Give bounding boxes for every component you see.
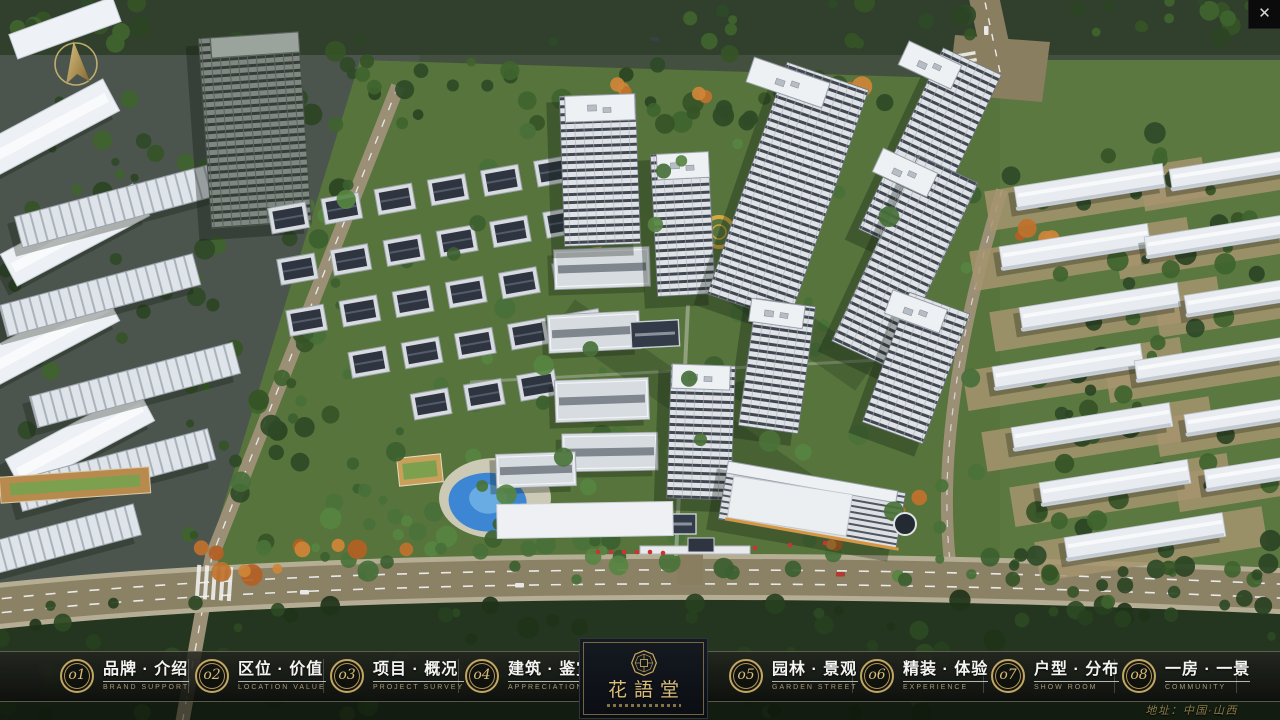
nav-number-badge: o1: [60, 659, 94, 693]
nav-label-en: GARDEN STREET: [772, 684, 858, 692]
brand-seal-icon: [629, 648, 659, 678]
nav-number-badge: o3: [330, 659, 364, 693]
nav-underline: [373, 681, 464, 682]
nav-underline: [1034, 681, 1119, 682]
nav-label-zh: 一房 · 一景: [1165, 661, 1250, 679]
nav-item-architecture[interactable]: o4 建筑 · 鉴赏 APPRECIATION: [465, 659, 593, 693]
nav-label-zh: 园林 · 景观: [772, 661, 857, 679]
nav-label-en: BRAND SUPPORT: [103, 684, 189, 692]
nav-item-views[interactable]: o8 一房 · 一景 COMMUNITY: [1122, 659, 1250, 693]
nav-label-zh: 品牌 · 介绍: [103, 661, 188, 679]
nav-underline: [103, 681, 189, 682]
project-name: 花語堂: [601, 680, 686, 700]
nav-underline: [903, 681, 988, 682]
nav-number-badge: o7: [991, 659, 1025, 693]
nav-label-zh: 户型 · 分布: [1034, 661, 1119, 679]
nav-item-garden[interactable]: o5 园林 · 景观 GARDEN STREET: [729, 659, 858, 693]
nav-label-en: APPRECIATION: [508, 684, 584, 692]
nav-number-badge: o2: [195, 659, 229, 693]
nav-label-en: SHOW ROOM: [1034, 684, 1098, 692]
nav-label-en: LOCATION VALUE: [238, 684, 326, 692]
map-viewport[interactable]: [0, 0, 1280, 720]
nav-label-en: COMMUNITY: [1165, 684, 1226, 692]
logo-frame: 花語堂: [583, 642, 704, 715]
nav-item-project[interactable]: o3 项目 · 概况 PROJECT SURVEY: [330, 659, 464, 693]
logo-tagline: [607, 704, 681, 707]
nav-label-en: PROJECT SURVEY: [373, 684, 464, 692]
nav-number-badge: o4: [465, 659, 499, 693]
nav-item-brand[interactable]: o1 品牌 · 介绍 BRAND SUPPORT: [60, 659, 189, 693]
compass-icon: [46, 34, 106, 94]
nav-label-zh: 精装 · 体验: [903, 661, 988, 679]
nav-label-zh: 区位 · 价值: [238, 661, 323, 679]
aerial-render: [0, 0, 1280, 720]
nav-underline: [238, 681, 326, 682]
nav-item-floorplans[interactable]: o7 户型 · 分布 SHOW ROOM: [991, 659, 1119, 693]
nav-underline: [772, 681, 858, 682]
sales-presentation-screen: ✕ 地址：中国·山西 o1 品牌 · 介绍 BRAND SUPPORT o2 区…: [0, 0, 1280, 720]
nav-number-badge: o5: [729, 659, 763, 693]
close-button[interactable]: ✕: [1248, 0, 1280, 29]
nav-underline: [1165, 681, 1250, 682]
nav-item-interior[interactable]: o6 精装 · 体验 EXPERIENCE: [860, 659, 988, 693]
project-address: 地址：中国·山西: [1145, 702, 1238, 718]
nav-number-badge: o8: [1122, 659, 1156, 693]
brand-logo-panel[interactable]: 花語堂: [579, 638, 708, 719]
nav-number-badge: o6: [860, 659, 894, 693]
nav-label-en: EXPERIENCE: [903, 684, 968, 692]
nav-item-location[interactable]: o2 区位 · 价值 LOCATION VALUE: [195, 659, 326, 693]
nav-label-zh: 项目 · 概况: [373, 661, 458, 679]
